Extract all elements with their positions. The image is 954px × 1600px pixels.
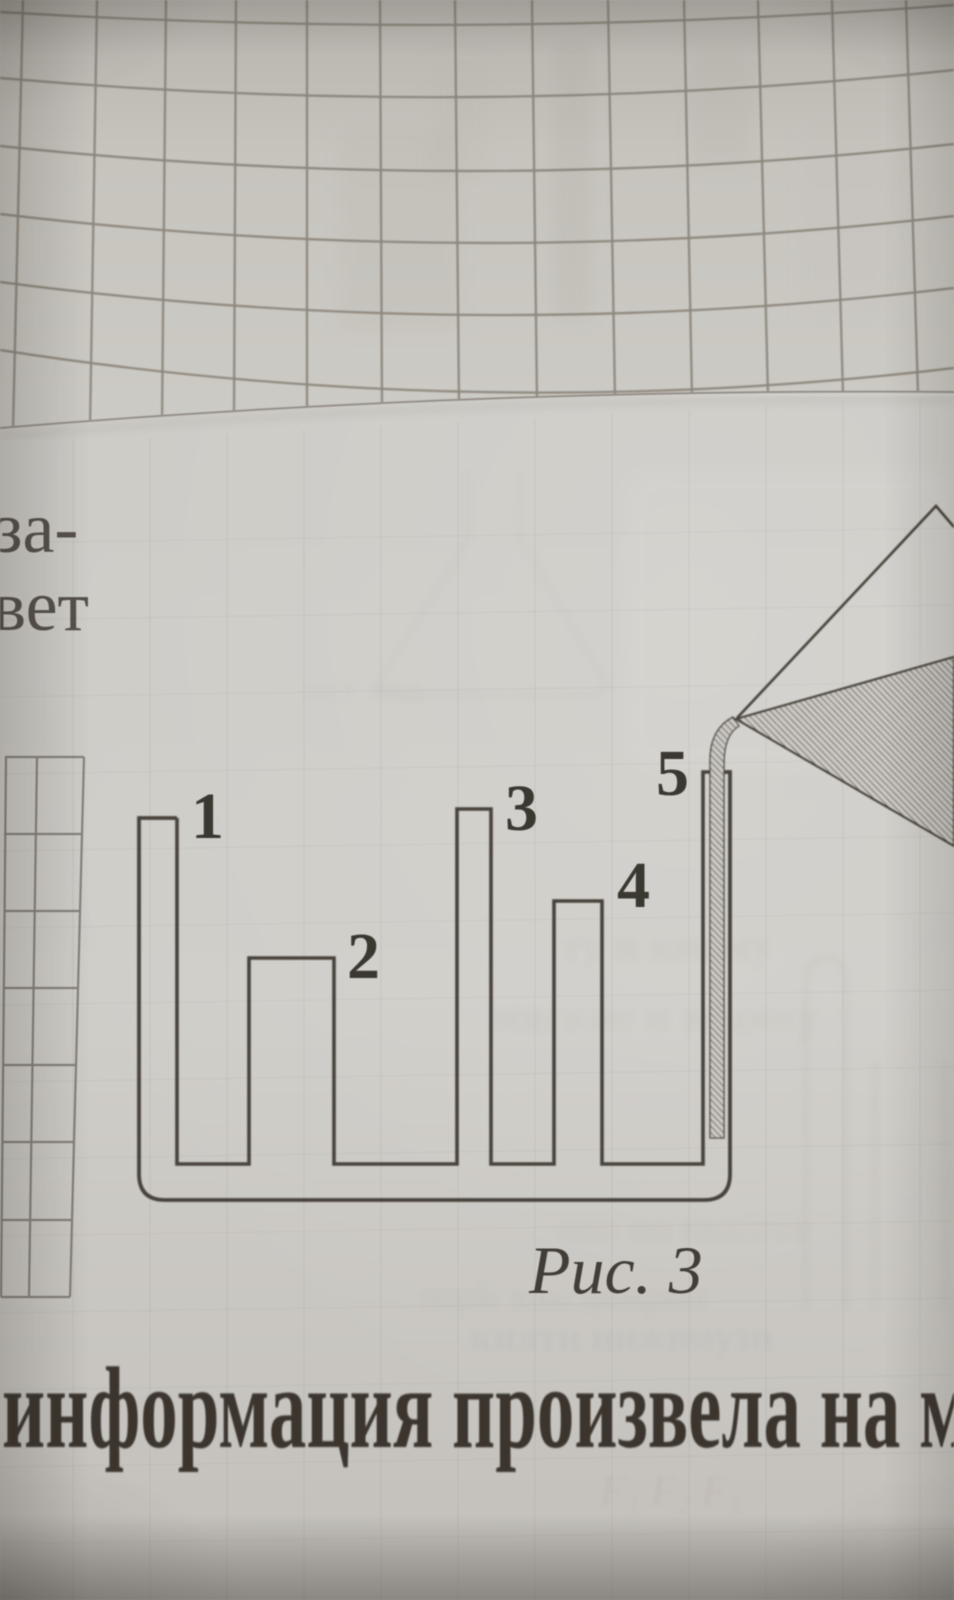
svg-text:3: 3 bbox=[505, 772, 538, 845]
svg-text:2: 2 bbox=[347, 920, 380, 993]
svg-text:ту и кнему: ту и кнему bbox=[560, 921, 773, 970]
svg-text:5: 5 bbox=[656, 737, 689, 810]
svg-text:информация произвела на м: информация произвела на м bbox=[2, 1345, 954, 1473]
svg-text:1: 1 bbox=[191, 780, 224, 853]
svg-text:4: 4 bbox=[617, 849, 650, 922]
svg-text:мягкие и водяну: мягкие и водяну bbox=[490, 991, 819, 1040]
svg-text:Рис. 3: Рис. 3 bbox=[528, 1232, 703, 1308]
svg-text:нет вод: нет вод bbox=[300, 667, 424, 709]
svg-text:за-: за- bbox=[0, 488, 78, 568]
svg-text:вет: вет bbox=[0, 566, 89, 646]
svg-text:F₁ F₂ F₃: F₁ F₂ F₃ bbox=[599, 1469, 742, 1515]
